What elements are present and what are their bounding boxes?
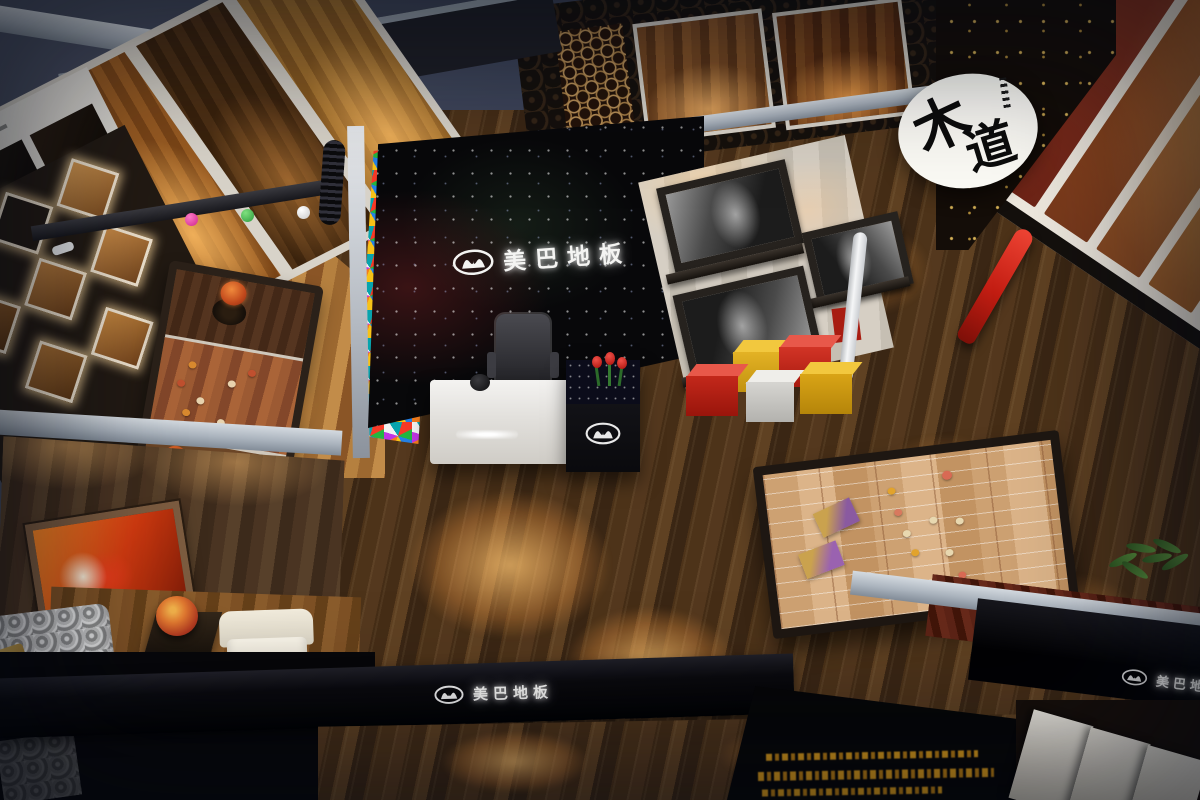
pedestal-display-corner: [1016, 700, 1200, 800]
stool-yellow: [800, 374, 852, 414]
stool-white: [746, 382, 794, 422]
feature-wall-logo: 美巴地板: [451, 234, 632, 280]
brand-oval-mark-icon: [434, 685, 465, 705]
showroom-render: 美巴地板: [0, 0, 1200, 800]
fascia-logo: 美巴地板: [434, 681, 554, 706]
gold-text-line: [766, 750, 978, 761]
gold-text-line: [762, 786, 942, 796]
sofa-lower-hint: [0, 731, 82, 800]
potted-plant: [1108, 538, 1188, 588]
feature-wall-logo-text: 美巴地板: [502, 234, 632, 277]
brand-oval-mark-icon: [585, 422, 621, 445]
brochure: [798, 540, 845, 579]
flower-arrangement: [156, 596, 198, 636]
stool-red: [686, 376, 738, 416]
white-ball: [297, 206, 310, 219]
brochure: [813, 497, 860, 537]
reception-desk: [430, 380, 576, 464]
pink-ball: [185, 213, 198, 226]
brand-oval-mark-icon: [1121, 667, 1149, 687]
corner-fascia-logo: 美巴地板: [1120, 666, 1200, 697]
green-ball: [241, 209, 254, 222]
corner-fascia-logo-text: 美巴地板: [1155, 671, 1200, 698]
brand-oval-mark-icon: [451, 247, 495, 277]
red-flowers: [592, 352, 632, 386]
gold-text-line: [758, 768, 994, 781]
fascia-logo-text: 美巴地板: [473, 681, 554, 705]
desk-disc: [470, 374, 490, 391]
round-sign-char-2: 道: [955, 101, 1024, 184]
